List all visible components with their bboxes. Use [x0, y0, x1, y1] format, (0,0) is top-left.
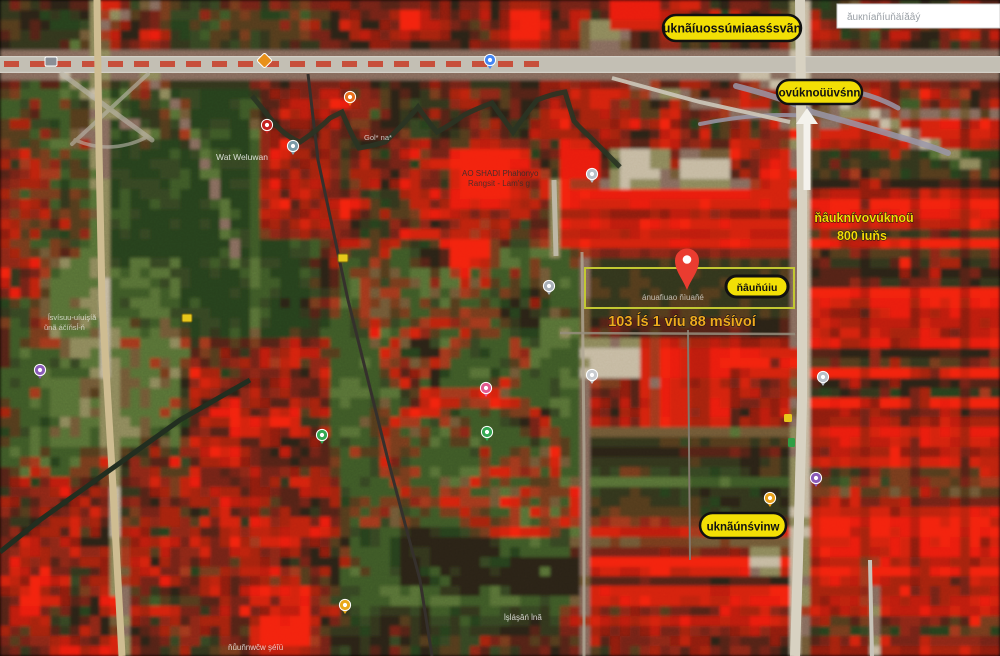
svg-text:ĺsvísuu-uíuíşíă: ĺsvísuu-uíuíşíă: [48, 313, 97, 322]
svg-text:103 ĺś 1 víu 88 mśívoí: 103 ĺś 1 víu 88 mśívoí: [608, 312, 756, 330]
svg-text:ňâuňúiu: ňâuňúiu: [737, 282, 778, 294]
svg-text:uknãíuossúміаasśsvãn: uknãíuossúміаasśsvãn: [663, 22, 801, 36]
svg-text:ăuкníañíuňäíăâý: ăuкníañíuňäíăâý: [847, 12, 920, 23]
svg-text:ŭnã áčíňsĺ-ň: ŭnã áčíňsĺ-ň: [44, 323, 85, 332]
svg-text:ánuafiuao ňìuaňé: ánuafiuao ňìuaňé: [642, 293, 704, 302]
svg-text:ĺşĺáşâń ĺnă: ĺşĺáşâń ĺnă: [504, 613, 542, 622]
svg-text:Rangsit - Lam's g: Rangsit - Lam's g: [468, 179, 530, 188]
svg-text:Wat Weluwan: Wat Weluwan: [216, 152, 268, 162]
svg-text:800 ìuňs: 800 ìuňs: [837, 229, 887, 243]
svg-text:ňâuknívovúknoü: ňâuknívovúknoü: [814, 211, 913, 225]
svg-text:AO SHADI Phahonyo: AO SHADI Phahonyo: [462, 169, 539, 178]
svg-text:Gol* na*: Gol* na*: [364, 133, 392, 142]
svg-text:ňůuňnwčw şéîü: ňůuňnwčw şéîü: [228, 643, 283, 652]
svg-text:uknãúnśvinw: uknãúnśvinw: [707, 522, 780, 534]
svg-text:ovúknoüüvśnn: ovúknoüüvśnn: [779, 88, 861, 100]
